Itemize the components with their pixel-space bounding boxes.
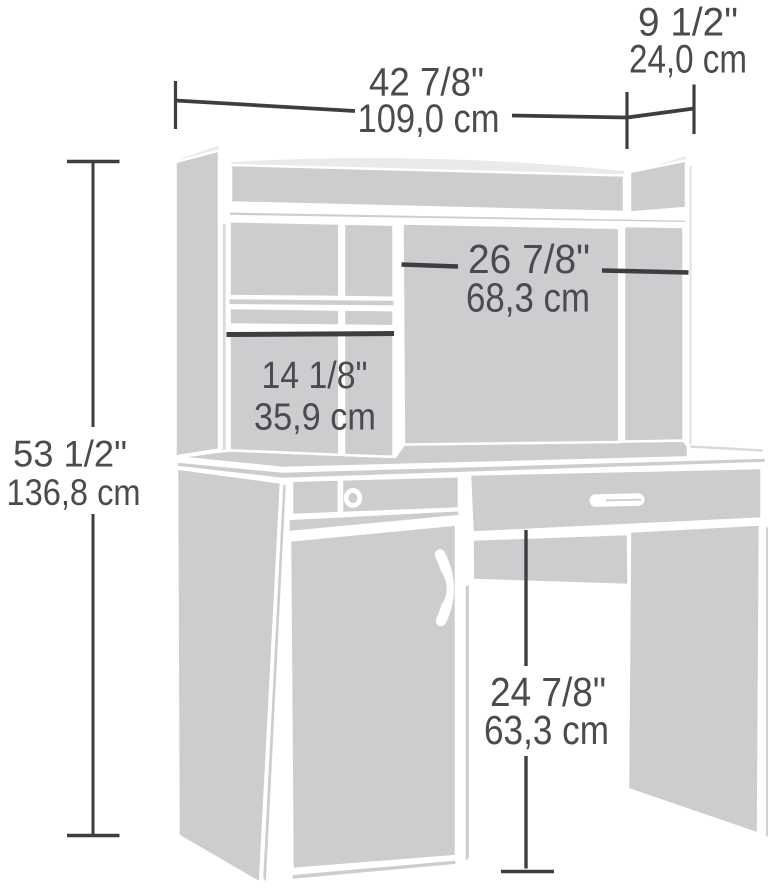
svg-text:24,0 cm: 24,0 cm bbox=[629, 38, 747, 82]
svg-text:14 1/8": 14 1/8" bbox=[262, 355, 368, 397]
svg-text:109,0 cm: 109,0 cm bbox=[358, 97, 500, 141]
svg-text:136,8 cm: 136,8 cm bbox=[7, 472, 141, 513]
svg-text:53 1/2": 53 1/2" bbox=[13, 434, 127, 475]
svg-text:35,9 cm: 35,9 cm bbox=[254, 397, 376, 439]
svg-text:68,3 cm: 68,3 cm bbox=[466, 275, 590, 321]
svg-text:63,3 cm: 63,3 cm bbox=[484, 707, 609, 753]
